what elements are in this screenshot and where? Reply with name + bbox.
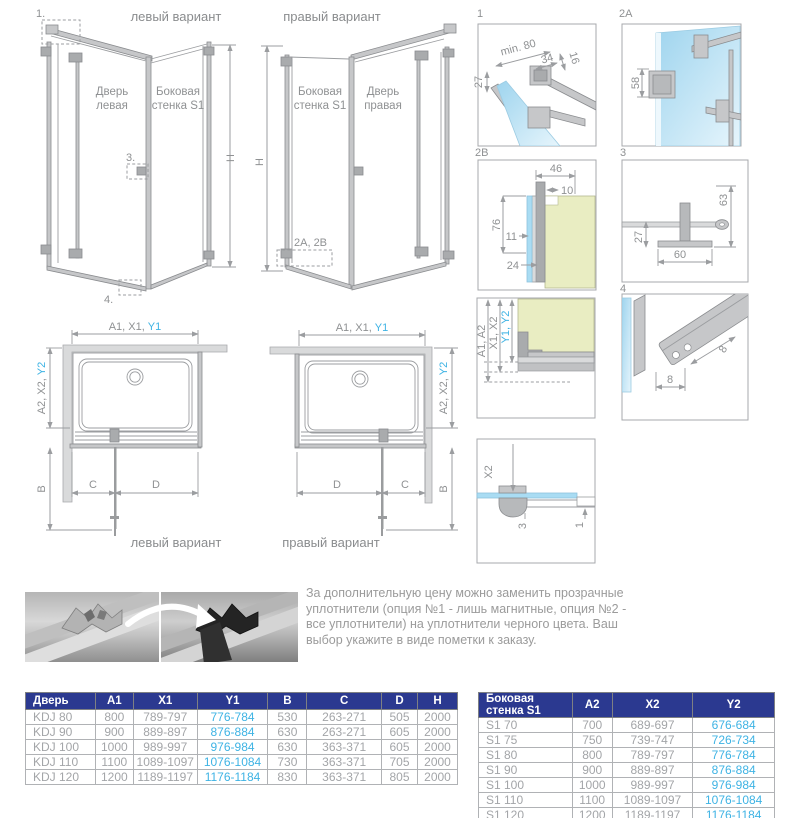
table-cell: 2000 <box>417 740 457 755</box>
door-handle <box>137 167 146 175</box>
dim-11: 11 <box>506 231 517 243</box>
dim-27: 27 <box>473 76 485 88</box>
table-cell: 776-784 <box>197 710 268 725</box>
table-cell: 605 <box>382 725 418 740</box>
table-cell: 889-897 <box>612 763 693 778</box>
wall-section <box>518 299 594 352</box>
wall-profile-right <box>445 47 449 264</box>
table-cell: S1 110 <box>479 793 573 808</box>
bar-bracket-inner <box>534 70 547 81</box>
table-cell: 889-897 <box>133 725 197 740</box>
table-cell: 730 <box>268 755 307 770</box>
table-cell: 605 <box>382 740 418 755</box>
callout-label-1: 1. <box>36 8 45 20</box>
dim-76: 76 <box>491 219 503 231</box>
table-cell: 1200 <box>95 770 133 785</box>
table-row: S1 80800789-797776-784 <box>479 748 775 763</box>
side-wall-label: стенка S1 <box>152 100 205 112</box>
dim-b: B <box>36 485 48 492</box>
column-header: D <box>382 693 418 710</box>
table-row: KDJ 12012001189-11971176-1184830363-3718… <box>26 770 458 785</box>
table-cell: 976-984 <box>693 778 775 793</box>
door-track <box>295 444 426 448</box>
table-row: S1 70700689-697676-684 <box>479 718 775 733</box>
plan-side-dim: A2, X2,Y2 <box>36 362 48 415</box>
wall-bracket-inner <box>653 75 671 94</box>
iso-right-title: правый вариант <box>283 9 381 24</box>
table-cell: S1 80 <box>479 748 573 763</box>
detail-3-label: 3 <box>620 147 626 159</box>
wall-bracket <box>281 57 292 66</box>
table-cell: 2000 <box>417 770 457 785</box>
profile-recess <box>545 196 558 205</box>
table-cell: 900 <box>95 725 133 740</box>
table-cell: 789-797 <box>612 748 693 763</box>
column-header: Дверь <box>26 693 96 710</box>
table-cell: 1176-1184 <box>197 770 268 785</box>
corner-post <box>349 57 354 288</box>
table-row: S1 90900889-897876-884 <box>479 763 775 778</box>
table-cell: 505 <box>382 710 418 725</box>
plan-side-dim: A2, X2,Y2 <box>438 362 450 415</box>
column-header: X2 <box>612 693 693 718</box>
table-cell: 363-371 <box>307 770 382 785</box>
door-label: Дверь <box>96 86 129 98</box>
plan-top-dim: A1, X1,Y1 <box>109 321 162 333</box>
dim-3: 3 <box>517 523 529 529</box>
side-wall-glass <box>295 354 299 447</box>
detail-wall-mounting-section: A1, A2 X1, X2 Y1, Y2 <box>476 298 595 418</box>
plan-top-dim: A1, X1,Y1 <box>336 322 389 334</box>
hinge-bottom <box>69 249 82 258</box>
gasket <box>532 196 536 282</box>
table-header-row: ДверьA1X1Y1BCDH <box>26 693 458 710</box>
table-cell: 2000 <box>417 755 457 770</box>
door-handle <box>354 167 363 175</box>
dim-d: D <box>333 479 341 491</box>
detail-1-label: 1 <box>477 8 483 20</box>
column-header: C <box>307 693 382 710</box>
table-cell: 630 <box>268 725 307 740</box>
dim-60: 60 <box>674 249 686 261</box>
side-wall-glass <box>198 352 202 447</box>
table-cell: 739-747 <box>612 733 693 748</box>
tray-inner <box>305 361 418 433</box>
table-cell: S1 70 <box>479 718 573 733</box>
table-cell: 1089-1097 <box>612 793 693 808</box>
dim-16: 16 <box>566 51 581 66</box>
side-wall-label: стенка S1 <box>294 100 347 112</box>
column-header: A1 <box>95 693 133 710</box>
door-bottom-rail <box>47 266 146 291</box>
height-dim-label: H <box>225 154 237 162</box>
dim-8-side: 8 <box>717 344 730 356</box>
seal-photo-after <box>150 588 300 678</box>
hinge-top <box>69 53 82 62</box>
table-row: KDJ 1001000989-997976-984630363-37160520… <box>26 740 458 755</box>
column-header: B <box>268 693 307 710</box>
glass-section <box>527 196 532 282</box>
dim-24: 24 <box>507 260 519 272</box>
seal-replacement-note: За дополнительную цену можно заменить пр… <box>306 586 642 648</box>
magnet-profile-stack <box>110 429 119 442</box>
iso-drawing-right-variant: правый вариант 2A, 2B H Боковая стенка S… <box>254 9 456 290</box>
table-cell: KDJ 90 <box>26 725 96 740</box>
table-row: S1 1001000989-997976-984 <box>479 778 775 793</box>
handle-bar <box>622 222 719 227</box>
door-dimensions-table: ДверьA1X1Y1BCDHKDJ 80800789-797776-78453… <box>25 692 458 785</box>
door-bottom-rail <box>352 262 446 290</box>
side-wall-profile <box>285 55 289 267</box>
detail-2b-wall-profile-section: 2B 46 10 76 11 24 <box>475 147 596 290</box>
column-header: Y2 <box>693 693 775 718</box>
door-handle <box>378 516 387 519</box>
side-wall-label: Боковая <box>156 86 200 98</box>
table-cell: 726-734 <box>693 733 775 748</box>
table-cell: KDJ 100 <box>26 740 96 755</box>
glass-section <box>477 493 577 498</box>
floor-layer <box>518 357 594 363</box>
table-cell: KDJ 80 <box>26 710 96 725</box>
wall-bracket <box>443 251 454 259</box>
table-cell: S1 100 <box>479 778 573 793</box>
door-label: левая <box>96 100 128 112</box>
wall-profile <box>536 182 545 282</box>
table-cell: 805 <box>382 770 418 785</box>
panel-divider <box>417 54 420 258</box>
plan-view-right-variant: A1, X1,Y1 A2, X2,Y2 B D C правый вариант <box>270 322 458 550</box>
wall-bracket <box>444 24 456 33</box>
iso-left-title: левый вариант <box>131 9 222 24</box>
wall-section <box>545 196 595 288</box>
table-cell: 789-797 <box>133 710 197 725</box>
glass-clamp <box>528 107 550 128</box>
callout-label-3: 3. <box>126 152 135 164</box>
connector-clamp <box>716 100 729 122</box>
table-cell: 1076-1084 <box>693 793 775 808</box>
table-cell: 1189-1197 <box>612 808 693 818</box>
table-cell: S1 120 <box>479 808 573 818</box>
table-row: S1 11011001089-10971076-1084 <box>479 793 775 808</box>
column-header: Боковая стенка S1 <box>479 693 573 718</box>
table-cell: KDJ 110 <box>26 755 96 770</box>
dim-46: 46 <box>550 163 562 175</box>
panel-divider <box>76 55 79 258</box>
tray-edge-profile <box>528 352 594 357</box>
profile-end <box>577 497 595 506</box>
wall-bracket <box>46 25 58 34</box>
table-cell: 705 <box>382 755 418 770</box>
dim-b: B <box>438 485 450 492</box>
detail-4-seal-profile: 4 8 8 <box>620 280 771 420</box>
column-header: Y1 <box>197 693 268 710</box>
table-cell: 676-684 <box>693 718 775 733</box>
technical-diagram: левый вариант 1. 3. 4. H Дверь <box>0 0 802 680</box>
table-cell: S1 75 <box>479 733 573 748</box>
door-handle <box>110 516 119 519</box>
table-cell: 776-784 <box>693 748 775 763</box>
table-cell: 800 <box>95 710 133 725</box>
table-cell: 263-271 <box>307 725 382 740</box>
hinge-top <box>415 51 428 60</box>
side-wall-dimensions-table: Боковая стенка S1A2X2Y2S1 70700689-69767… <box>478 692 775 818</box>
seal-profile-body <box>658 280 771 366</box>
table-cell: 689-697 <box>612 718 693 733</box>
plan-left-caption: левый вариант <box>131 535 222 550</box>
wall-bracket <box>443 49 454 57</box>
detail-3-handle-profile: 3 63 27 60 <box>620 147 748 282</box>
table-cell: 630 <box>268 740 307 755</box>
door-label: правая <box>364 100 402 112</box>
table-cell: 2000 <box>417 710 457 725</box>
dim-63: 63 <box>718 194 730 206</box>
height-dim-label: H <box>254 158 266 166</box>
table-cell: 1189-1197 <box>133 770 197 785</box>
callout-label-2a-2b: 2A, 2B <box>294 237 327 249</box>
tray-inner <box>79 359 192 431</box>
dim-a1-a2: A1, A2 <box>476 325 488 357</box>
side-bottom-rail <box>151 263 207 289</box>
table-cell: 876-884 <box>693 763 775 778</box>
dimensions-table: ДверьA1X1Y1BCDHKDJ 80800789-797776-78453… <box>25 692 458 785</box>
table-cell: 363-371 <box>307 740 382 755</box>
table-cell: 263-271 <box>307 710 382 725</box>
table-header-row: Боковая стенка S1A2X2Y2 <box>479 693 775 718</box>
side-bottom-rail <box>286 265 351 289</box>
table-cell: 363-371 <box>307 755 382 770</box>
dimensions-table: Боковая стенка S1A2X2Y2S1 70700689-69767… <box>478 692 775 818</box>
dim-x1-x2: X1, X2 <box>488 316 500 349</box>
glass-panel <box>622 298 631 392</box>
iso-drawing-left-variant: левый вариант 1. 3. 4. H Дверь <box>36 8 237 306</box>
table-cell: 1089-1097 <box>133 755 197 770</box>
table-cell: S1 90 <box>479 763 573 778</box>
detail-2a-label: 2A <box>619 8 633 20</box>
side-wall-profile <box>207 42 211 266</box>
hook-hole <box>720 223 725 226</box>
callout-label-4: 4. <box>104 294 113 306</box>
dim-1: 1 <box>574 522 586 528</box>
wall-bracket <box>204 47 214 55</box>
wall-bracket <box>41 245 51 254</box>
dim-x2: X2 <box>483 465 495 478</box>
dim-min-80: min. 80 <box>499 38 537 59</box>
top-support-bar <box>351 27 453 60</box>
table-cell: 989-997 <box>612 778 693 793</box>
detail-bottom-profile-section: X2 3 1 <box>477 439 595 563</box>
table-cell: 1100 <box>95 755 133 770</box>
top-support-bar <box>49 28 152 61</box>
table-cell: 750 <box>572 733 612 748</box>
table-row: KDJ 11011001089-10971076-1084730363-3717… <box>26 755 458 770</box>
base-layer <box>518 363 594 371</box>
handle-base-flange <box>658 241 712 247</box>
table-cell: 2000 <box>417 725 457 740</box>
handle-stem <box>680 203 690 241</box>
spec-sheet-page: левый вариант 1. 3. 4. H Дверь <box>0 0 802 818</box>
table-row: S1 12012001189-11971176-1184 <box>479 808 775 818</box>
table-cell: 1176-1184 <box>693 808 775 818</box>
dim-c: C <box>401 479 409 491</box>
detail-2b-label: 2B <box>475 147 488 159</box>
table-cell: 830 <box>268 770 307 785</box>
drain-inner <box>355 374 365 384</box>
table-row: S1 75750739-747726-734 <box>479 733 775 748</box>
table-cell: 1000 <box>95 740 133 755</box>
door-track <box>70 444 201 448</box>
table-cell: 800 <box>572 748 612 763</box>
table-cell: 989-997 <box>133 740 197 755</box>
dim-c: C <box>89 479 97 491</box>
dim-58: 58 <box>630 77 642 89</box>
glass-edge-profile <box>634 295 645 376</box>
door-label: Дверь <box>367 86 400 98</box>
wall-bracket <box>41 47 51 56</box>
table-row: KDJ 80800789-797776-784530263-2715052000 <box>26 710 458 725</box>
table-cell: 1000 <box>572 778 612 793</box>
table-row: KDJ 90900889-897876-884630263-2716052000 <box>26 725 458 740</box>
table-cell: 1076-1084 <box>197 755 268 770</box>
table-cell: 876-884 <box>197 725 268 740</box>
table-cell: 976-984 <box>197 740 268 755</box>
detail-2a-side-wall-fixings: 2A 58 <box>619 8 741 146</box>
plan-view-left-variant: A1, X1,Y1 A2, X2,Y2 B C D левый вариант <box>36 321 227 550</box>
hinge-bottom <box>415 247 428 256</box>
seal-photo-before <box>10 586 160 676</box>
table-cell: 530 <box>268 710 307 725</box>
dim-y1-y2: Y1, Y2 <box>500 311 512 344</box>
clamp-arm <box>550 110 585 126</box>
magnet-seal-hook <box>499 498 527 517</box>
table-cell: 1100 <box>572 793 612 808</box>
dim-27: 27 <box>633 231 645 243</box>
plan-right-caption: правый вариант <box>282 535 380 550</box>
table-cell: 900 <box>572 763 612 778</box>
wall-bracket <box>204 251 214 259</box>
side-wall-label: Боковая <box>298 86 342 98</box>
bar-clamp <box>694 35 708 58</box>
magnet-profile-stack <box>379 429 388 442</box>
panel-edge-profile <box>729 50 733 146</box>
wall-profile-left <box>47 42 51 268</box>
table-cell: KDJ 120 <box>26 770 96 785</box>
column-header: H <box>417 693 457 710</box>
drain-inner <box>130 372 140 382</box>
detail-1-wall-support: 1 min. 80 34 16 27 <box>473 8 596 146</box>
dim-d: D <box>152 479 160 491</box>
detail-4-label: 4 <box>620 283 626 295</box>
dim-10: 10 <box>561 185 573 197</box>
tray-outline <box>73 353 198 444</box>
column-header: X1 <box>133 693 197 710</box>
column-header: A2 <box>572 693 612 718</box>
table-cell: 700 <box>572 718 612 733</box>
dim-8-bottom: 8 <box>667 374 673 386</box>
corner-post <box>146 57 151 289</box>
table-cell: 1200 <box>572 808 612 818</box>
